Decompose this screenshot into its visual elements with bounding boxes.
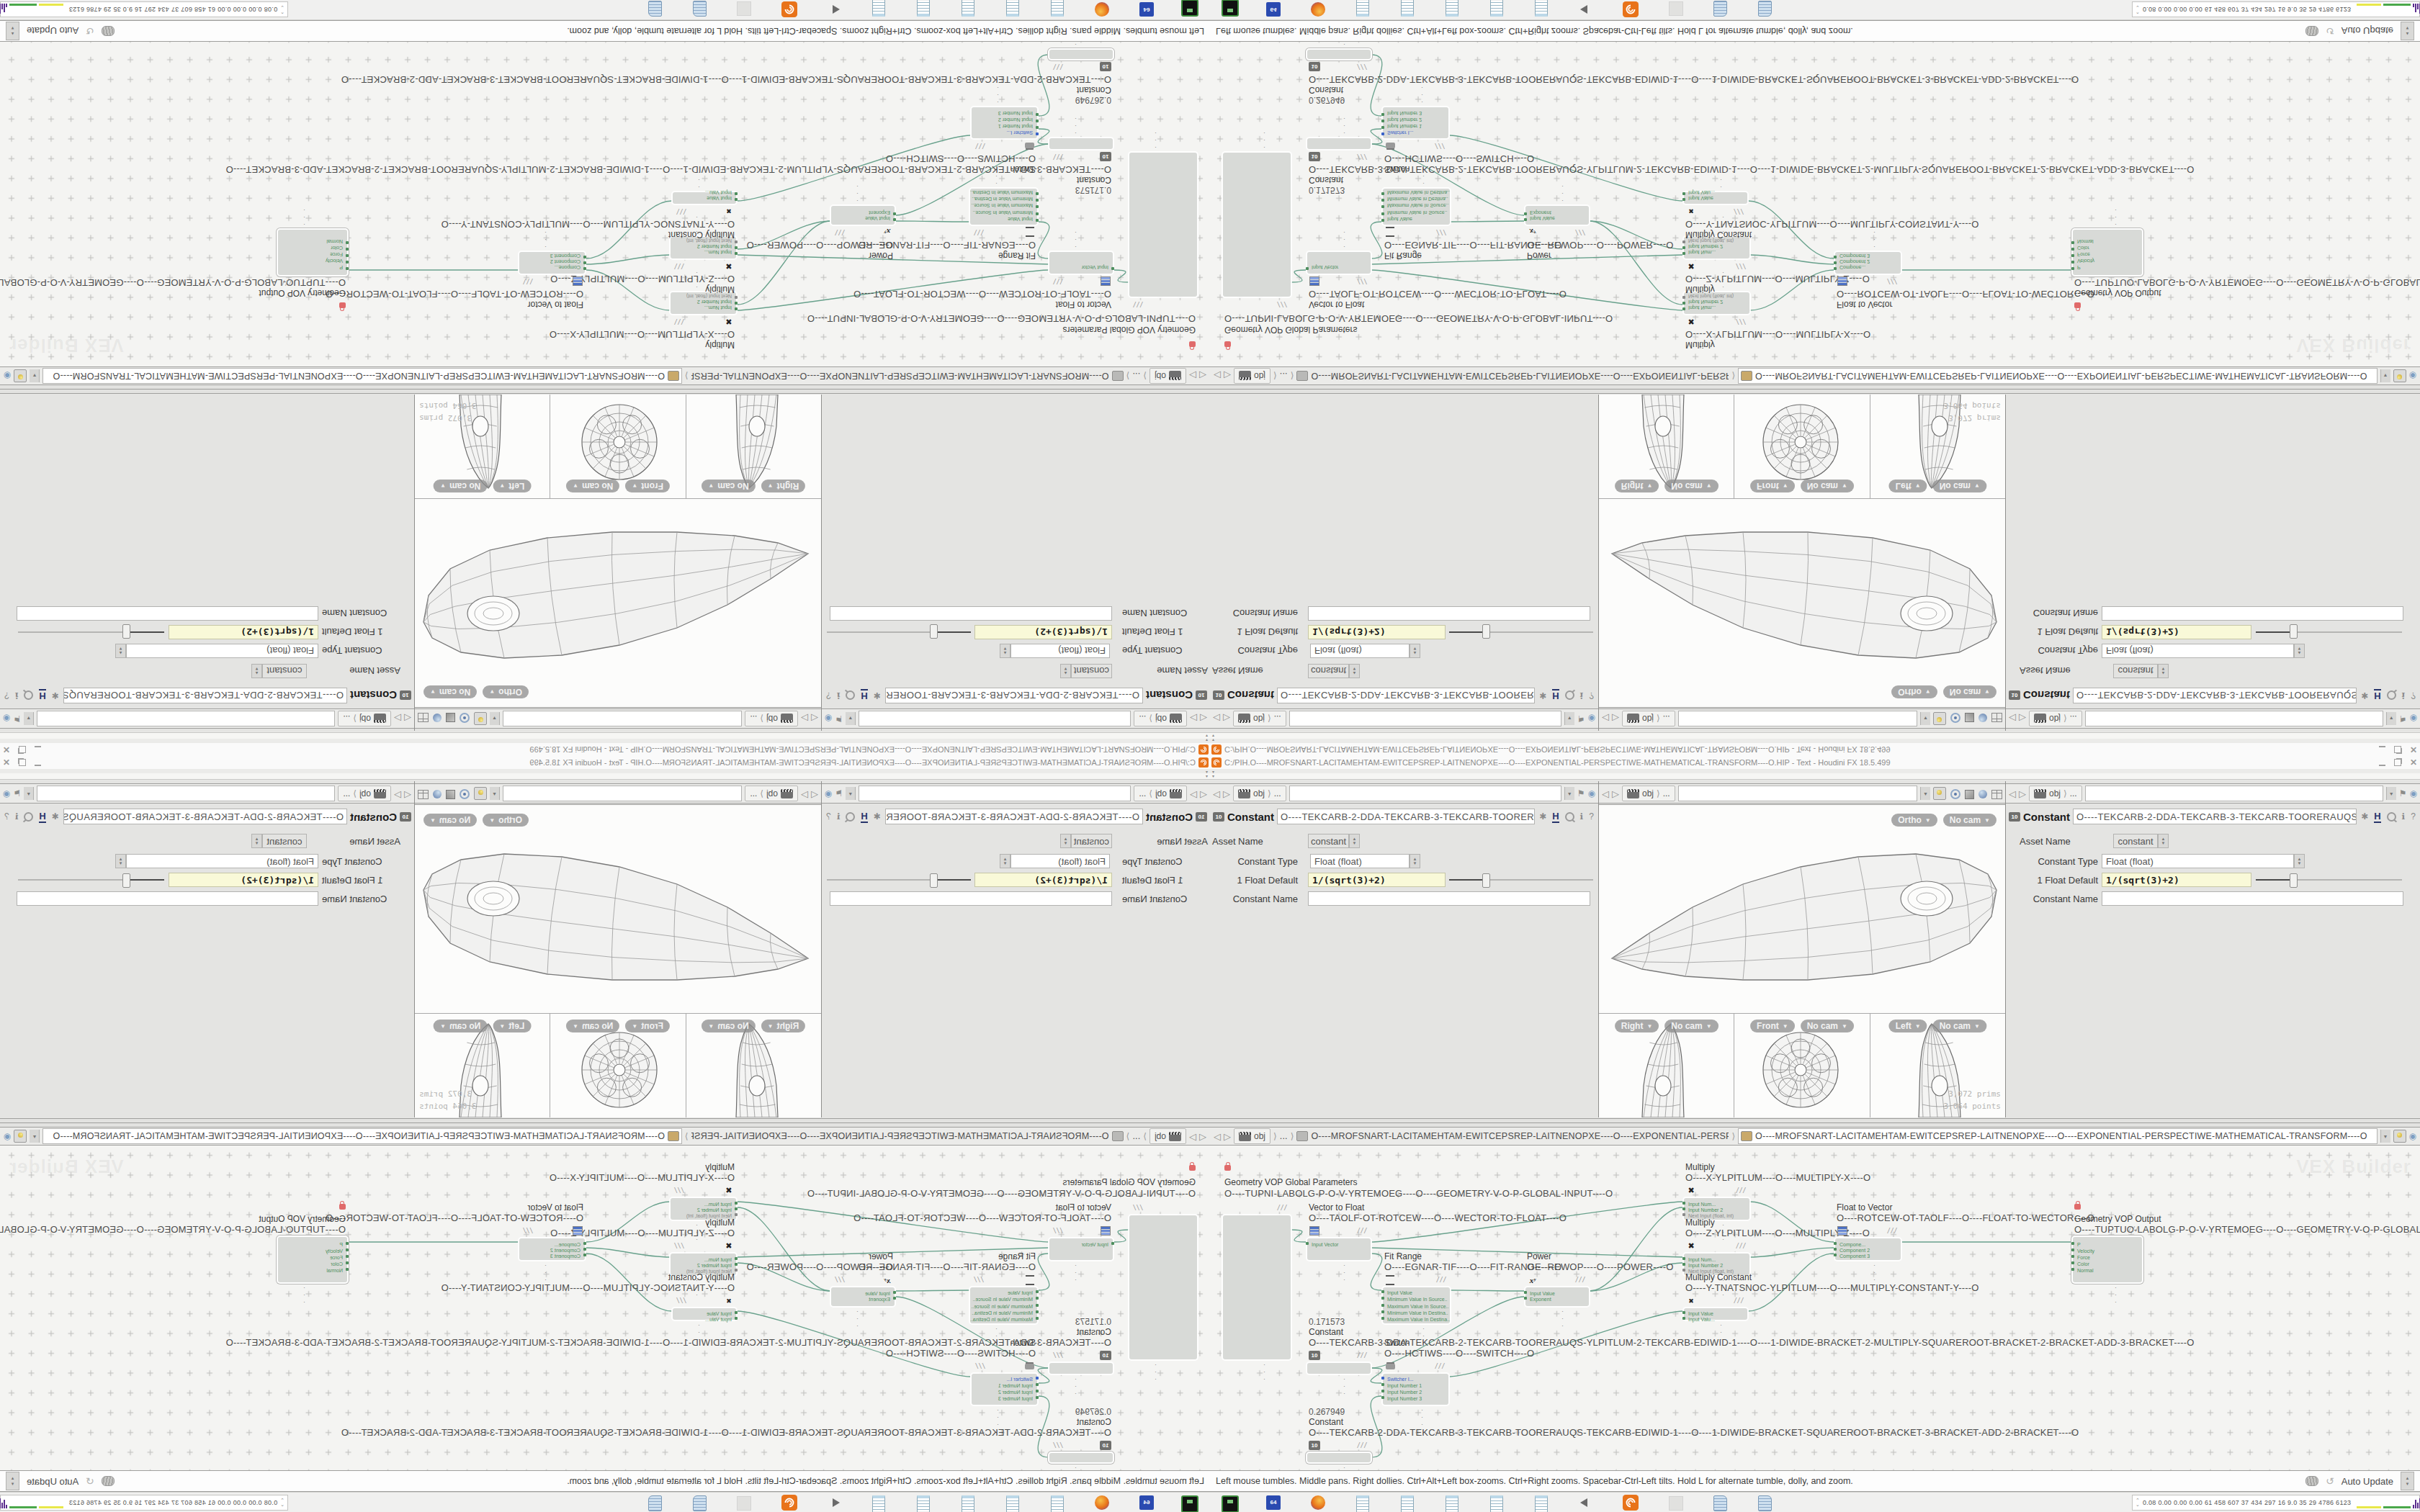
node-input-port[interactable]: Input Value xyxy=(707,1311,732,1316)
pane-tab-obj[interactable]: obj ⟩ ... xyxy=(1233,711,1286,726)
nav-back-icon[interactable]: ◁ xyxy=(811,714,818,724)
close-button[interactable]: ✕ xyxy=(1,757,12,767)
node-input-port[interactable]: Component 3 xyxy=(1839,253,1870,258)
search-icon[interactable] xyxy=(2387,691,2396,701)
node-flags[interactable]: /// xyxy=(522,1227,548,1235)
taskbar-script-icon[interactable] xyxy=(691,1,709,18)
node-flag-dots[interactable]: · · · xyxy=(1873,1261,1878,1283)
node-input-port[interactable]: P xyxy=(339,265,343,270)
path-ellipsis[interactable]: ... xyxy=(343,788,350,798)
node-name-field[interactable]: O----TEKCARB-2-DDA-TEKCARB-3-TEKCARB-TOO… xyxy=(885,809,1143,824)
path-ellipsis[interactable]: ... xyxy=(750,788,757,798)
nav-back-icon[interactable]: ◁ xyxy=(1213,789,1220,798)
pin-icon[interactable]: ⚑ xyxy=(1577,788,1585,798)
float-default-field[interactable]: 1/(sqrt(3)+2) xyxy=(2102,873,2251,887)
taskbar-notepad-icon[interactable] xyxy=(1488,1494,1505,1511)
node-flags[interactable]: /// xyxy=(1420,1362,1446,1370)
constant-type-field[interactable]: Float (float) xyxy=(1010,854,1110,868)
path-ellipsis[interactable]: ... xyxy=(1280,1131,1288,1141)
recook-icon[interactable]: ↺ xyxy=(86,1475,94,1487)
node-flag-dots[interactable]: · · · xyxy=(1152,1361,1157,1382)
breadcrumb-vop-combo[interactable]: O----MROFSNART-LACITAMEHTAM-EWITCEPSREP-… xyxy=(42,1128,681,1144)
taskbar-notepad-icon[interactable] xyxy=(1533,1,1550,18)
nav-back-icon[interactable]: ◁ xyxy=(1602,789,1609,798)
nav-back-icon[interactable]: ◁ xyxy=(1199,1132,1206,1141)
houdini-help-icon[interactable]: H xyxy=(2374,690,2380,702)
node-body[interactable] xyxy=(1129,153,1197,297)
path-ellipsis[interactable]: ... xyxy=(2070,714,2077,724)
taskbar-houdini-icon[interactable] xyxy=(1622,1494,1639,1511)
cook-mode-label[interactable]: Auto Update xyxy=(2341,26,2393,37)
info-icon[interactable]: ℹ xyxy=(1580,811,1584,822)
node-input-port[interactable]: Input Number 3 xyxy=(1387,1396,1422,1401)
camera-menu-pill[interactable]: No cam▼ xyxy=(702,1020,755,1032)
node-input-port[interactable]: Input Num... xyxy=(704,250,732,255)
nav-back-icon[interactable]: ◁ xyxy=(2009,789,2016,798)
node-flags[interactable]: /// xyxy=(1342,277,1368,285)
taskbar-volume-icon[interactable] xyxy=(1577,1494,1595,1511)
node-flags[interactable]: /// xyxy=(673,318,699,325)
combo-dropdown-icon[interactable]: ▼ xyxy=(490,787,500,800)
view-menu-pill[interactable]: Right▼ xyxy=(761,1020,806,1032)
radar-icon[interactable]: ◉ xyxy=(2410,714,2417,724)
houdini-help-icon[interactable]: H xyxy=(1552,811,1559,823)
pane-splitter[interactable] xyxy=(0,389,1210,394)
taskbar-notepad-icon[interactable] xyxy=(1399,1,1416,18)
info-icon[interactable]: ℹ xyxy=(837,811,841,822)
view-menu-pill[interactable]: Ortho▼ xyxy=(1891,685,1937,698)
view-menu-pill[interactable]: Left▼ xyxy=(493,480,531,492)
node-name-field[interactable]: O----TEKCARB-2-DDA-TEKCARB-3-TEKCARB-TOO… xyxy=(63,688,347,703)
nav-forward-icon[interactable]: ▷ xyxy=(2019,789,2026,798)
houdini-help-icon[interactable]: H xyxy=(861,690,867,702)
node-flags[interactable]: /// xyxy=(1052,153,1078,161)
taskbar-firefox-icon[interactable] xyxy=(1093,1494,1111,1511)
radar-icon[interactable]: ◉ xyxy=(2409,371,2416,381)
taskbar-firefox-icon[interactable] xyxy=(1309,1,1327,18)
taskbar-notepad-icon[interactable] xyxy=(1004,1494,1021,1511)
node-input-port[interactable]: Component 3 xyxy=(1839,1254,1870,1259)
cook-mode-label[interactable]: Auto Update xyxy=(2341,1476,2393,1487)
node-input-port[interactable]: Input Num... xyxy=(1688,1202,1716,1207)
node-body[interactable] xyxy=(1307,252,1371,274)
node-body[interactable] xyxy=(1223,153,1291,297)
pane-splitter[interactable] xyxy=(1210,384,2420,390)
node-input-port[interactable]: Input Valu... xyxy=(1688,191,1715,196)
node-input-port[interactable]: Normal xyxy=(2077,239,2094,244)
shading-cube-icon[interactable] xyxy=(1965,714,1974,723)
node-input-port[interactable]: Input Number 2 xyxy=(1387,1390,1422,1395)
collapsed-menu-strip[interactable]: ▾ xyxy=(0,738,1210,743)
taskbar-firefox-icon[interactable] xyxy=(1309,1494,1327,1511)
node-input-port[interactable]: Switcher I... xyxy=(1387,130,1414,135)
node-input-port[interactable]: Switcher I... xyxy=(1006,130,1033,135)
float-default-slider[interactable] xyxy=(1449,625,1593,639)
node-input-port[interactable]: Input Value xyxy=(1008,217,1033,222)
info-icon[interactable]: ℹ xyxy=(1580,690,1584,701)
radar-icon[interactable]: ◉ xyxy=(3,788,10,798)
viewport-layout-icon[interactable] xyxy=(418,790,429,799)
asset-name-dropdown[interactable]: constant xyxy=(1071,834,1112,848)
node-flags[interactable]: /// xyxy=(1721,1187,1747,1194)
dropdown-spinner-icon[interactable]: ▲▼ xyxy=(2294,644,2305,658)
viewport-main-view[interactable]: Ortho▼ No cam▼ xyxy=(1599,498,2005,708)
cook-mode-spinner[interactable]: ▲▼ xyxy=(2401,1472,2414,1490)
node-input-port[interactable]: Input Vector xyxy=(1312,1242,1338,1247)
nav-forward-icon[interactable]: ▷ xyxy=(2019,714,2026,724)
node-input-port[interactable]: Maximum Value In Destina.. xyxy=(970,190,1033,195)
camera-menu-pill[interactable]: No cam▼ xyxy=(702,480,755,492)
path-combo-field[interactable] xyxy=(1678,711,1917,726)
headlight-icon[interactable] xyxy=(1933,787,1946,800)
taskbar-script-icon[interactable] xyxy=(691,1494,709,1511)
taskbar-firefox-icon[interactable] xyxy=(1093,1,1111,18)
network-editor-canvas[interactable]: VEX Builder Geometry VOP Global Paramete… xyxy=(1210,1146,2420,1470)
node-input-port[interactable]: P xyxy=(2077,1242,2081,1247)
cook-mode-spinner[interactable]: ▲▼ xyxy=(2401,22,2414,40)
taskbar-notepad-icon[interactable] xyxy=(1399,1494,1416,1511)
search-icon[interactable] xyxy=(846,812,855,822)
pin-icon[interactable]: ⚑ xyxy=(2399,788,2407,798)
asset-name-dropdown[interactable]: constant xyxy=(1308,664,1349,678)
node-body[interactable] xyxy=(1307,50,1371,59)
node-input-port[interactable]: Input Vector xyxy=(1082,1242,1108,1247)
node-flag-dots[interactable]: · · · xyxy=(1873,229,1878,251)
view-menu-pill[interactable]: Front▼ xyxy=(1750,1020,1795,1032)
search-icon[interactable] xyxy=(1565,812,1574,822)
path-ellipsis[interactable]: ... xyxy=(1132,1131,1140,1141)
radar-icon[interactable]: ◉ xyxy=(4,1131,11,1141)
node-flag-dots[interactable]: · · · xyxy=(1421,1406,1426,1428)
node-flag-dots[interactable]: · · · xyxy=(1343,42,1348,48)
node-input-port[interactable]: Velocity xyxy=(2077,1248,2094,1254)
node-input-port[interactable]: Minimum Value In Source.. xyxy=(972,1297,1033,1302)
node-input-port[interactable]: Color xyxy=(331,1261,343,1266)
taskbar-notepad-icon[interactable] xyxy=(1533,1494,1550,1511)
pin-icon[interactable]: ⚑ xyxy=(1577,714,1585,724)
combo-dropdown-icon[interactable]: ▼ xyxy=(1920,787,1930,800)
asset-name-dropdown[interactable]: constant xyxy=(1308,834,1349,848)
node-input-port[interactable]: Input Valu... xyxy=(705,191,732,196)
headlight-icon[interactable] xyxy=(474,712,487,725)
view-menu-pill[interactable]: Right▼ xyxy=(761,480,806,492)
node-flag-dots[interactable]: · · · xyxy=(1263,1361,1268,1382)
combo-dropdown-icon[interactable]: ▼ xyxy=(2380,1130,2390,1143)
combo-dropdown-icon[interactable]: ▼ xyxy=(1564,787,1574,800)
node-input-port[interactable]: Force xyxy=(330,1255,343,1260)
lamp-icon[interactable] xyxy=(2393,1130,2406,1143)
taskbar-volume-icon[interactable] xyxy=(825,1,843,18)
node-body[interactable] xyxy=(1307,138,1371,149)
node-input-port[interactable]: Maximum Value In Destina.. xyxy=(1387,1317,1450,1322)
node-flags[interactable]: /// xyxy=(1052,1441,1078,1449)
node-input-port[interactable]: Exponent xyxy=(1530,1297,1551,1302)
pin-icon[interactable]: ⚑ xyxy=(13,714,21,724)
viewport-layout-icon[interactable] xyxy=(418,714,429,723)
constant-name-field[interactable] xyxy=(1308,606,1590,621)
view-menu-pill[interactable]: Left▼ xyxy=(493,1020,531,1032)
camera-menu-pill[interactable]: No cam▼ xyxy=(566,480,619,492)
gear-icon[interactable]: ✱ xyxy=(874,690,881,701)
taskbar-ghost-icon[interactable] xyxy=(736,1,753,18)
float-default-slider[interactable] xyxy=(827,873,971,887)
path-ellipsis[interactable]: ... xyxy=(1274,788,1281,798)
taskbar-recorder-icon[interactable] xyxy=(1183,1,1200,18)
node-input-port[interactable]: Input Number 2 xyxy=(1688,244,1723,249)
display-options-icon[interactable] xyxy=(1978,714,1987,722)
search-icon[interactable] xyxy=(24,812,33,822)
float-default-slider[interactable] xyxy=(2256,625,2402,639)
node-flags[interactable]: /// xyxy=(676,1297,702,1305)
node-flag-dots[interactable]: · · · xyxy=(542,229,547,251)
node-input-port[interactable]: Minimum Value In Source.. xyxy=(972,210,1033,215)
node-input-port[interactable]: Minimum Value in Destina.. xyxy=(1387,1310,1448,1315)
path-combo-field[interactable] xyxy=(859,711,1131,726)
taskbar-floppy-64-icon[interactable]: 64 xyxy=(1138,1494,1155,1511)
node-body[interactable] xyxy=(831,206,895,225)
nav-forward-icon[interactable]: ▷ xyxy=(1223,789,1230,798)
float-default-slider[interactable] xyxy=(1449,873,1593,887)
node-flags[interactable]: /// xyxy=(673,1187,699,1194)
restore-button[interactable] xyxy=(17,745,27,755)
constant-name-field[interactable] xyxy=(2102,891,2403,906)
nav-forward-icon[interactable]: ▷ xyxy=(394,714,401,724)
path-ellipsis[interactable]: ... xyxy=(1280,371,1288,381)
dropdown-spinner-icon[interactable]: ▲▼ xyxy=(251,834,262,848)
node-input-port[interactable]: Switcher I... xyxy=(1006,1377,1033,1382)
dropdown-spinner-icon[interactable]: ▲▼ xyxy=(1000,854,1010,868)
path-combo-field[interactable] xyxy=(859,786,1131,801)
system-monitor-widget[interactable]: ⌃⌄ 0.08 0.00 0.00 0.00 61 458 607 37 434… xyxy=(0,1495,288,1511)
taskbar-script-icon[interactable] xyxy=(647,1494,664,1511)
taskbar-ghost-icon[interactable] xyxy=(1667,1494,1684,1511)
node-flags[interactable]: /// xyxy=(1262,300,1288,308)
node-input-port[interactable]: Input Number 2 xyxy=(1688,1207,1723,1212)
radar-icon[interactable]: ◉ xyxy=(2410,788,2417,798)
node-flag-dots[interactable]: · · · xyxy=(1561,1308,1567,1329)
nav-forward-icon[interactable]: ▷ xyxy=(1189,372,1196,381)
dropdown-spinner-icon[interactable]: ▲▼ xyxy=(1000,644,1010,658)
node-flags[interactable]: /// xyxy=(1052,277,1078,285)
node-flag-dots[interactable]: · · · xyxy=(2115,207,2120,228)
node-body[interactable] xyxy=(1223,1215,1291,1359)
cook-mode-spinner[interactable]: ▲▼ xyxy=(6,22,19,40)
help-icon[interactable]: ? xyxy=(826,690,831,701)
node-input-port[interactable]: Input Number 1 xyxy=(998,1383,1033,1388)
node-flags[interactable]: /// xyxy=(1718,207,1744,215)
node-input-port[interactable]: Next Input (float, int) xyxy=(686,294,732,299)
gear-icon[interactable]: ✱ xyxy=(52,690,59,701)
taskbar-notepad-icon[interactable] xyxy=(1004,1,1021,18)
viewport-layout-icon[interactable] xyxy=(1991,790,2002,799)
dropdown-spinner-icon[interactable]: ▲▼ xyxy=(1410,854,1420,868)
info-icon[interactable]: ℹ xyxy=(2402,811,2406,822)
node-input-port[interactable]: Input Number 2 xyxy=(697,300,732,305)
help-icon[interactable]: ? xyxy=(4,690,9,701)
camera-menu-pill[interactable]: No cam▼ xyxy=(1933,480,1986,492)
pin-icon[interactable]: ⚑ xyxy=(13,788,21,798)
radar-icon[interactable]: ◉ xyxy=(4,371,11,381)
node-flags[interactable]: /// xyxy=(522,277,548,285)
nav-back-icon[interactable]: ◁ xyxy=(811,789,818,798)
pane-tab-obj[interactable]: obj ⟩ ... xyxy=(2029,711,2082,726)
view-menu-pill[interactable]: Left▼ xyxy=(1889,480,1927,492)
slider-handle[interactable] xyxy=(1482,873,1490,888)
constant-type-field[interactable]: Float (float) xyxy=(1310,644,1410,658)
restore-button[interactable] xyxy=(2393,757,2403,767)
node-input-port[interactable]: Input Num... xyxy=(1688,1257,1716,1262)
camera-menu-pill[interactable]: No cam▼ xyxy=(434,1020,487,1032)
node-flags[interactable]: /// xyxy=(281,1225,307,1233)
node-flag-dots[interactable]: · · · xyxy=(994,84,999,106)
pane-tab-obj[interactable]: obj ⟩ ... xyxy=(745,711,798,726)
node-input-port[interactable]: Input Num... xyxy=(704,1202,732,1207)
combo-dropdown-icon[interactable]: ▼ xyxy=(1564,712,1574,725)
node-input-port[interactable]: Next Input (float, int) xyxy=(1688,294,1734,299)
taskbar-notepad-icon[interactable] xyxy=(1049,1494,1066,1511)
node-input-port[interactable]: Color xyxy=(331,246,343,251)
node-input-port[interactable]: Input Number 2 xyxy=(697,244,732,249)
viewport-main-view[interactable]: Ortho▼ No cam▼ xyxy=(415,804,821,1014)
constant-type-field[interactable]: Float (float) xyxy=(1010,644,1110,658)
node-input-port[interactable]: Input Valu... xyxy=(1688,1317,1715,1322)
node-flags[interactable]: /// xyxy=(1421,1276,1447,1284)
path-combo-field[interactable] xyxy=(2085,786,2383,801)
memory-icon[interactable] xyxy=(2305,26,2318,36)
node-input-port[interactable]: Component 2 xyxy=(1839,1248,1870,1253)
node-input-port[interactable]: Maximum Value In Source.. xyxy=(972,203,1033,208)
path-combo-field[interactable] xyxy=(1678,786,1917,801)
viewport-right-view[interactable]: Right▼ No cam▼ xyxy=(686,395,821,498)
collapsed-shelf-strip[interactable]: ▾ xyxy=(1210,773,2420,780)
node-input-port[interactable]: Input Number 3 xyxy=(998,1396,1033,1401)
taskbar-notepad-icon[interactable] xyxy=(1354,1,1371,18)
nav-forward-icon[interactable]: ▷ xyxy=(1190,789,1197,798)
pane-tab-obj[interactable]: obj ⟩ ... xyxy=(1622,711,1675,726)
node-input-port[interactable]: Component 2 xyxy=(550,1248,581,1253)
node-flags[interactable]: /// xyxy=(1342,1351,1368,1359)
cook-mode-label[interactable]: Auto Update xyxy=(27,26,79,37)
node-input-port[interactable]: Maximum Value In Destina.. xyxy=(970,1317,1033,1322)
constant-name-field[interactable] xyxy=(17,606,318,621)
view-menu-pill[interactable]: Front▼ xyxy=(1750,480,1795,492)
node-flag-dots[interactable]: · · · xyxy=(1343,115,1348,137)
nav-forward-icon[interactable]: ▷ xyxy=(1224,372,1231,381)
viewport-left-view[interactable]: Left▼ No cam▼ 3,072 prims3,064 points xyxy=(1870,1014,2005,1117)
float-default-field[interactable]: 1/(sqrt(3)+2) xyxy=(1308,873,1446,887)
nav-forward-icon[interactable]: ▷ xyxy=(1224,1132,1231,1141)
node-body[interactable] xyxy=(1307,1453,1371,1462)
info-icon[interactable]: ℹ xyxy=(15,811,19,822)
nav-forward-icon[interactable]: ▷ xyxy=(1189,1132,1196,1141)
dropdown-spinner-icon[interactable]: ▲▼ xyxy=(1060,664,1071,678)
nav-forward-icon[interactable]: ▷ xyxy=(1190,714,1197,724)
taskbar-recorder-icon[interactable] xyxy=(1220,1,1237,18)
node-flag-dots[interactable]: · · · xyxy=(853,1308,859,1329)
system-monitor-widget[interactable]: ⌃⌄ 0.08 0.00 0.00 0.00 61 458 607 37 434… xyxy=(2132,1,2420,17)
breadcrumb-geo-name[interactable]: O----MROFSNART-LACITAMEHTAM-EWITCEPSREP-… xyxy=(691,371,1109,381)
path-combo-field[interactable] xyxy=(1289,711,1561,726)
node-body[interactable] xyxy=(1049,138,1113,149)
node-flags[interactable]: /// xyxy=(1132,300,1158,308)
float-default-slider[interactable] xyxy=(2256,873,2402,887)
slider-handle[interactable] xyxy=(2290,624,2298,639)
view-menu-pill[interactable]: Front▼ xyxy=(625,1020,670,1032)
node-flags[interactable]: /// xyxy=(2113,279,2139,287)
node-input-port[interactable]: Component 2 xyxy=(550,259,581,264)
viewport-left-view[interactable]: Left▼ No cam▼ 3,072 prims3,064 points xyxy=(415,1014,550,1117)
dropdown-spinner-icon[interactable]: ▲▼ xyxy=(2158,664,2169,678)
pane-tab-obj[interactable]: obj ⟩ ... xyxy=(745,786,798,801)
node-input-port[interactable]: P xyxy=(2077,265,2081,270)
node-flags[interactable]: /// xyxy=(1262,1204,1288,1212)
node-input-port[interactable]: Force xyxy=(2077,252,2090,257)
nav-back-icon[interactable]: ◁ xyxy=(1214,372,1221,381)
houdini-help-icon[interactable]: H xyxy=(39,811,45,823)
view-menu-pill[interactable]: Right▼ xyxy=(1615,480,1659,492)
node-flags[interactable]: /// xyxy=(1342,1441,1368,1449)
gear-icon[interactable]: ✱ xyxy=(52,811,59,822)
node-body[interactable] xyxy=(1307,1363,1371,1374)
asset-name-dropdown[interactable]: constant xyxy=(262,664,307,678)
pin-icon[interactable]: ⚑ xyxy=(2399,714,2407,724)
node-input-port[interactable]: Maximum Value In Source.. xyxy=(972,1304,1033,1309)
help-icon[interactable]: ? xyxy=(2411,690,2416,701)
houdini-help-icon[interactable]: H xyxy=(1552,690,1559,702)
camera-menu-pill[interactable]: No cam▼ xyxy=(434,480,487,492)
node-flag-dots[interactable]: · · · xyxy=(853,183,859,204)
nav-back-icon[interactable]: ◁ xyxy=(404,714,411,724)
node-input-port[interactable]: Input Number 2 xyxy=(1688,300,1723,305)
node-input-port[interactable]: Exponent xyxy=(869,210,890,215)
nav-forward-icon[interactable]: ▷ xyxy=(394,789,401,798)
node-input-port[interactable]: Input Value xyxy=(1387,1290,1412,1295)
cook-mode-spinner[interactable]: ▲▼ xyxy=(6,1472,19,1490)
node-input-port[interactable]: Minimum Value In Source.. xyxy=(1387,1297,1448,1302)
node-flags[interactable]: /// xyxy=(1872,1227,1898,1235)
camera-menu-pill[interactable]: No cam▼ xyxy=(423,685,477,698)
view-pivot-icon[interactable] xyxy=(460,713,470,723)
slider-handle[interactable] xyxy=(122,873,130,888)
combo-dropdown-icon[interactable]: ▼ xyxy=(2380,369,2390,382)
node-flags[interactable]: /// xyxy=(1721,1242,1747,1250)
node-input-port[interactable]: Switcher I... xyxy=(1387,1377,1414,1382)
taskbar-floppy-64-icon[interactable]: 64 xyxy=(1138,1,1155,18)
dropdown-spinner-icon[interactable]: ▲▼ xyxy=(1349,834,1360,848)
node-flags[interactable]: /// xyxy=(1342,1227,1368,1235)
node-body[interactable] xyxy=(1049,1453,1113,1462)
taskbar-houdini-icon[interactable] xyxy=(1622,1,1639,18)
pane-tab-obj[interactable]: obj xyxy=(1234,1128,1270,1144)
viewport-layout-icon[interactable] xyxy=(1991,714,2002,723)
dropdown-spinner-icon[interactable]: ▲▼ xyxy=(2294,854,2305,868)
viewport-front-view[interactable]: Front▼ No cam▼ xyxy=(1734,395,1870,498)
node-input-port[interactable]: Velocity xyxy=(326,1248,343,1254)
dropdown-spinner-icon[interactable]: ▲▼ xyxy=(251,664,262,678)
node-input-port[interactable]: Velocity xyxy=(2077,258,2094,264)
camera-menu-pill[interactable]: No cam▼ xyxy=(1801,480,1854,492)
node-input-port[interactable]: Input Value xyxy=(1530,1291,1555,1296)
path-combo-field[interactable] xyxy=(37,711,335,726)
node-flag-dots[interactable]: · · · xyxy=(542,1261,547,1283)
float-default-field[interactable]: 1/(sqrt(3)+2) xyxy=(169,625,318,639)
lamp-icon[interactable] xyxy=(14,369,27,382)
node-input-port[interactable]: Compone... xyxy=(1839,1242,1865,1247)
asset-name-dropdown[interactable]: constant xyxy=(2113,834,2158,848)
breadcrumb-vop-combo[interactable]: O----MROFSNART-LACITAMEHTAM-EWITCEPSREP-… xyxy=(42,368,681,384)
pane-tab-obj[interactable]: obj xyxy=(1149,1128,1186,1144)
node-flag-dots[interactable]: · · · xyxy=(1421,84,1426,106)
